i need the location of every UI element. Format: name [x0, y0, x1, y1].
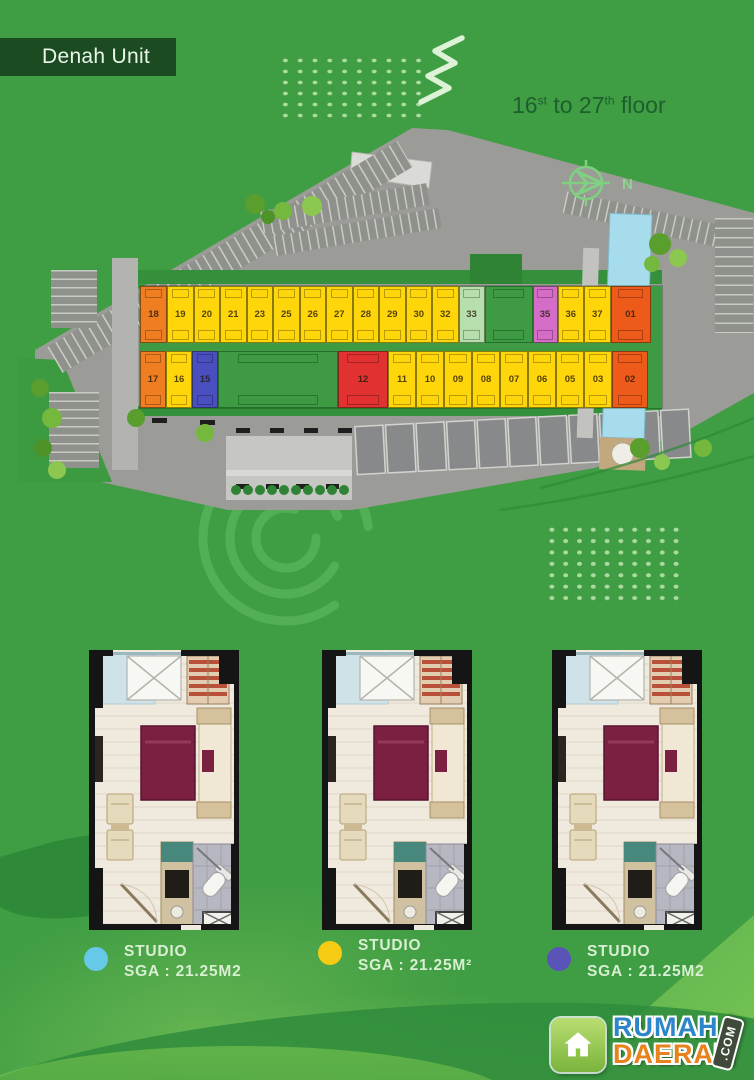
unit-17: 17: [140, 351, 166, 408]
unit-35: 35: [533, 286, 558, 343]
unit-number: 18: [148, 309, 159, 320]
building-footprint: 1819202123252627282930323335363701 17161…: [140, 286, 662, 408]
unit-15: 15: [192, 351, 218, 408]
unit-03: 03: [584, 351, 612, 408]
legend-dot-cyan: [84, 947, 108, 971]
unit-number: 35: [540, 309, 551, 320]
studio-floor-plan-3: [547, 644, 709, 936]
lift-lobby: [470, 254, 522, 284]
legend-dot-yellow: [318, 941, 342, 965]
unit-11: 11: [388, 351, 416, 408]
legend-label: STUDIO: [587, 942, 705, 962]
unit-number: 05: [565, 374, 576, 385]
unit-28: 28: [353, 286, 380, 343]
unit-19: 19: [167, 286, 194, 343]
unit-08: 08: [472, 351, 500, 408]
dot-grid-decoration: [545, 524, 683, 604]
unit-number: 32: [440, 309, 451, 320]
unit-37: 37: [584, 286, 611, 343]
zigzag-icon: [408, 26, 478, 116]
unit-20: 20: [194, 286, 221, 343]
unit-number: 09: [453, 374, 464, 385]
legend-label: STUDIO: [358, 936, 472, 956]
unit-number: 21: [228, 309, 239, 320]
unit-33: 33: [459, 286, 485, 343]
floor-range-label: 16st to 27th floor: [512, 92, 666, 119]
studio-floor-plan-2: [317, 644, 479, 936]
unit-27: 27: [326, 286, 353, 343]
unit-23: 23: [247, 286, 274, 343]
unit-32: 32: [432, 286, 459, 343]
unit-row-top: 1819202123252627282930323335363701: [140, 286, 662, 343]
legend-item-studio-1: STUDIO SGA : 21.25M2: [84, 942, 242, 982]
access-road: [112, 258, 138, 470]
unit-02: 02: [612, 351, 648, 408]
unit-05: 05: [556, 351, 584, 408]
unit-30: 30: [406, 286, 433, 343]
unit-number: 20: [201, 309, 212, 320]
house-icon: [551, 1018, 605, 1072]
drop-off-line: [226, 470, 352, 476]
unit-number: 06: [537, 374, 548, 385]
unit-number: 11: [397, 374, 407, 385]
core-area: [218, 351, 338, 408]
unit-01: 01: [611, 286, 651, 343]
legend-item-studio-2: STUDIO SGA : 21.25M²: [318, 936, 472, 976]
unit-29: 29: [379, 286, 406, 343]
unit-number: 33: [466, 309, 477, 320]
unit-10: 10: [416, 351, 444, 408]
legend-sga: SGA : 21.25M2: [124, 962, 242, 982]
unit-number: 08: [481, 374, 492, 385]
unit-number: 15: [200, 374, 211, 385]
rumah-daerah-logo: RUMAH DAERAH .COM: [543, 1010, 754, 1080]
unit-number: 01: [625, 309, 636, 320]
unit-number: 07: [509, 374, 520, 385]
unit-number: 23: [254, 309, 265, 320]
denah-unit-poster: Denah Unit 16st to 27th floor N: [0, 0, 754, 1080]
logo-line1: RUMAH: [613, 1014, 735, 1041]
unit-row-bottom: 17161512111009080706050302: [140, 351, 662, 408]
unit-number: 03: [593, 374, 604, 385]
legend-sga: SGA : 21.25M2: [587, 962, 705, 982]
unit-number: 30: [413, 309, 424, 320]
unit-25: 25: [273, 286, 300, 343]
unit-number: 12: [358, 374, 369, 385]
unit-number: 25: [281, 309, 292, 320]
compass-n-label: N: [622, 176, 633, 193]
core-area: [485, 286, 533, 343]
page-title-label: Denah Unit: [42, 45, 150, 69]
unit-number: 10: [425, 374, 436, 385]
unit-09: 09: [444, 351, 472, 408]
unit-26: 26: [300, 286, 327, 343]
unit-07: 07: [500, 351, 528, 408]
unit-number: 16: [174, 374, 185, 385]
unit-number: 28: [360, 309, 371, 320]
unit-number: 02: [625, 374, 636, 385]
page-title: Denah Unit: [0, 38, 176, 76]
dot-grid-decoration: [278, 55, 426, 121]
unit-21: 21: [220, 286, 247, 343]
legend-item-studio-3: STUDIO SGA : 21.25M2: [547, 942, 705, 982]
unit-16: 16: [166, 351, 192, 408]
unit-06: 06: [528, 351, 556, 408]
compass-north-icon: N: [560, 156, 646, 210]
unit-number: 17: [148, 374, 159, 385]
unit-12: 12: [338, 351, 388, 408]
unit-number: 36: [565, 309, 576, 320]
unit-number: 37: [592, 309, 603, 320]
legend-dot-purple: [547, 947, 571, 971]
unit-36: 36: [558, 286, 585, 343]
legend-label: STUDIO: [124, 942, 242, 962]
unit-number: 27: [334, 309, 345, 320]
unit-number: 29: [387, 309, 398, 320]
legend-sga: SGA : 21.25M²: [358, 956, 472, 976]
unit-number: 19: [175, 309, 186, 320]
unit-number: 26: [307, 309, 318, 320]
unit-18: 18: [140, 286, 167, 343]
studio-floor-plan-1: [84, 644, 246, 936]
